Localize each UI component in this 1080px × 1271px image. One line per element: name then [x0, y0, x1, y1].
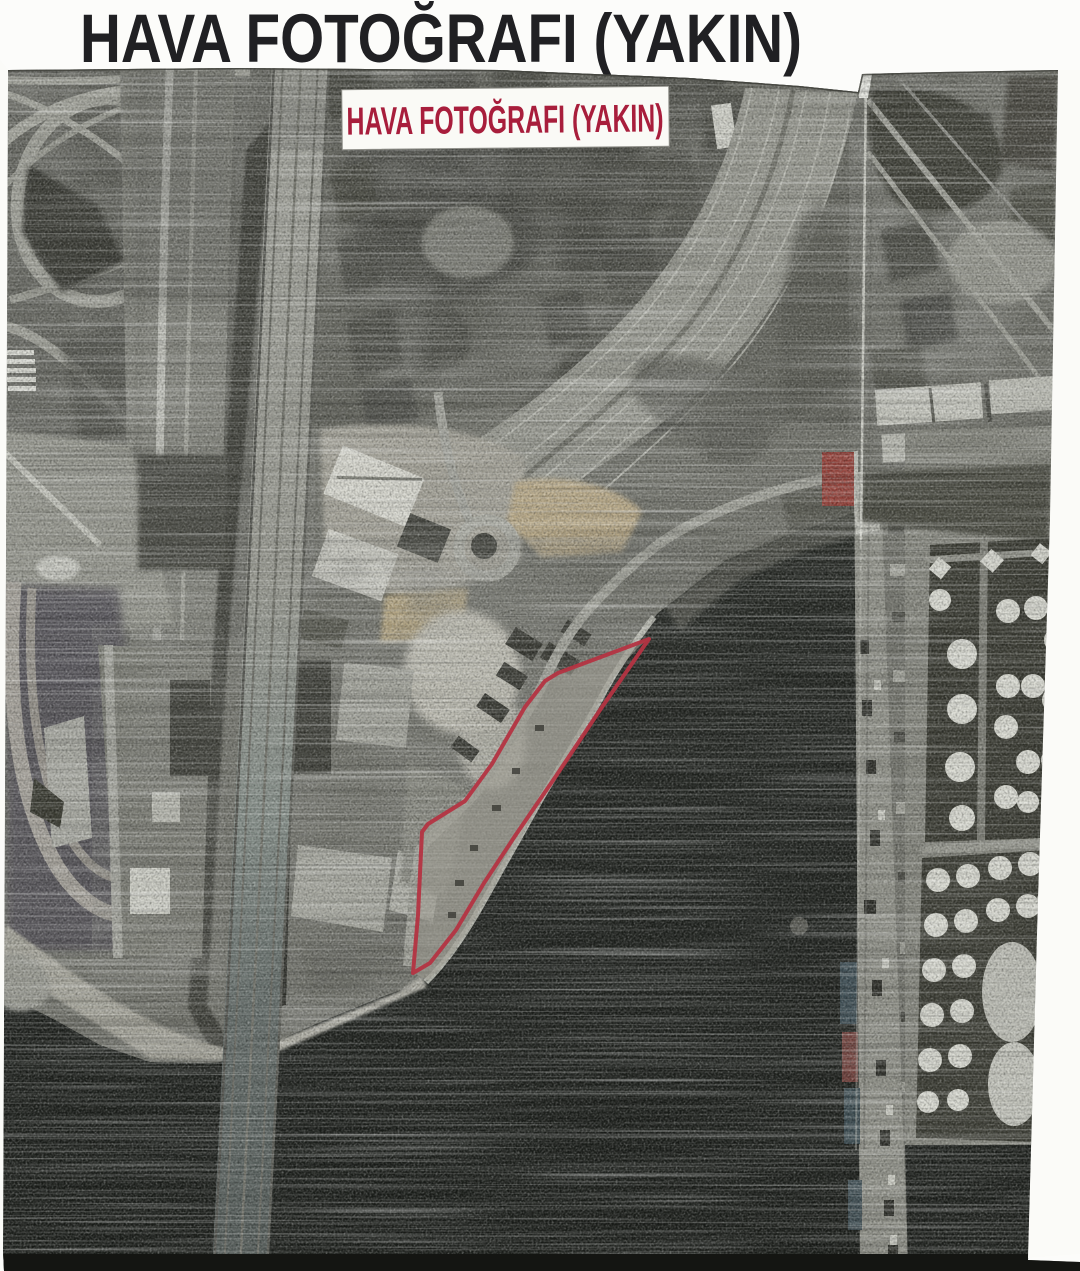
svg-text:HAVA FOTOĞRAFI (YAKIN): HAVA FOTOĞRAFI (YAKIN): [80, 0, 802, 77]
svg-text:HAVA FOTOĞRAFI (YAKIN): HAVA FOTOĞRAFI (YAKIN): [346, 96, 663, 143]
